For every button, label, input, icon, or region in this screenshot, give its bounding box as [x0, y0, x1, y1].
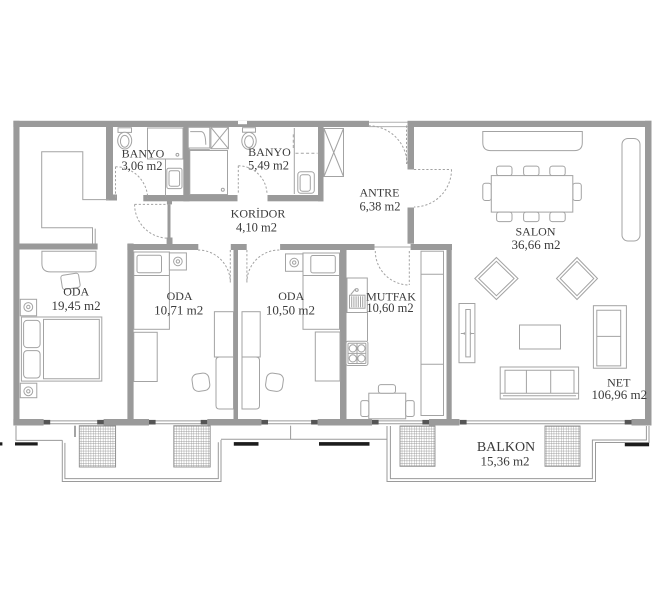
- svg-text:10,71 m2: 10,71 m2: [154, 303, 203, 318]
- svg-text:4,10 m2: 4,10 m2: [236, 221, 277, 235]
- svg-text:19,45 m2: 19,45 m2: [52, 298, 101, 313]
- svg-text:36,66 m2: 36,66 m2: [511, 237, 560, 252]
- svg-text:ODA: ODA: [63, 285, 89, 299]
- svg-text:ANTRE: ANTRE: [360, 186, 400, 200]
- svg-text:3,06 m2: 3,06 m2: [122, 159, 163, 173]
- svg-text:BANYO: BANYO: [248, 145, 291, 159]
- svg-text:106,96 m2: 106,96 m2: [591, 387, 647, 402]
- svg-text:KORİDOR: KORİDOR: [231, 207, 286, 221]
- svg-text:10,60 m2: 10,60 m2: [366, 301, 413, 315]
- svg-text:5,49 m2: 5,49 m2: [248, 159, 289, 173]
- svg-text:15,36 m2: 15,36 m2: [480, 454, 529, 469]
- svg-text:10,50 m2: 10,50 m2: [266, 303, 315, 318]
- svg-text:ODA: ODA: [167, 289, 193, 303]
- svg-text:6,38 m2: 6,38 m2: [360, 200, 401, 214]
- svg-text:ODA: ODA: [278, 289, 304, 303]
